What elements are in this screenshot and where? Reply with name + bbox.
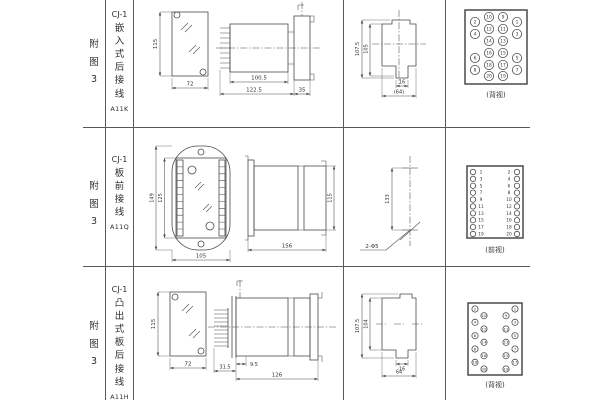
svg-text:122.5: 122.5 bbox=[246, 88, 262, 94]
type-label-a11q: CJ-1 板 前 接 线 A11Q bbox=[106, 155, 133, 231]
terminal-circle bbox=[514, 204, 519, 209]
terminal-number: 1 bbox=[516, 20, 519, 26]
a11q-side-view-drawing: 156 115 bbox=[238, 138, 346, 268]
dimension-arrowhead bbox=[170, 367, 174, 370]
terminal-number: 7 bbox=[516, 68, 519, 74]
dimension-arrowhead bbox=[333, 227, 336, 231]
svg-text:16: 16 bbox=[399, 80, 405, 86]
terminal-number: 13 bbox=[500, 39, 506, 45]
hatch-mark bbox=[189, 329, 200, 338]
terminal-number: 13 bbox=[478, 211, 484, 217]
a11h-panel-cutout-drawing: 107.5 104 16 64 bbox=[352, 278, 447, 396]
dimension-arrowhead bbox=[285, 81, 289, 84]
hole-callout: 2-Φ5 bbox=[360, 230, 410, 250]
dimension-arrowhead bbox=[205, 87, 209, 90]
terminal-circle bbox=[514, 197, 519, 202]
dim-total-length: 156 bbox=[248, 230, 326, 252]
svg-text:115: 115 bbox=[328, 193, 334, 203]
relay-outline bbox=[170, 292, 206, 356]
dimension-arrowhead bbox=[172, 87, 176, 90]
model-name: CJ-1 bbox=[106, 10, 133, 19]
terminal-circle bbox=[470, 176, 475, 181]
svg-text:72: 72 bbox=[185, 362, 192, 368]
dimension-arrowhead bbox=[361, 294, 364, 298]
dimension-arrowhead bbox=[155, 146, 158, 150]
terminal-number: 1 bbox=[480, 170, 483, 176]
terminal-circle bbox=[470, 197, 475, 202]
terminal-number: 20 bbox=[506, 232, 512, 238]
terminal-circle bbox=[514, 176, 519, 181]
dim-outer-height: 107.5 bbox=[355, 20, 394, 78]
dim-inner-height: 125 bbox=[158, 158, 176, 238]
terminal-circle bbox=[514, 190, 519, 195]
dim-height: 115 bbox=[153, 12, 172, 76]
terminal-number: 9 bbox=[505, 313, 508, 318]
terminal-number: 19 bbox=[504, 366, 509, 371]
dimension-arrowhead bbox=[236, 363, 240, 366]
dim-total-length: 126 bbox=[236, 360, 318, 381]
svg-text:(64): (64) bbox=[394, 90, 404, 96]
terminal-circle bbox=[470, 183, 475, 188]
mounting-plate bbox=[245, 156, 254, 240]
dimension-arrowhead bbox=[391, 168, 394, 172]
dim-width: 105 bbox=[172, 250, 230, 262]
mounting-hole bbox=[188, 166, 196, 174]
model-code: A11Q bbox=[106, 223, 133, 231]
svg-text:115: 115 bbox=[153, 38, 159, 49]
terminal-number: 11 bbox=[478, 204, 484, 210]
dim-board-offset: 9.5 bbox=[236, 356, 258, 368]
mounting-hole bbox=[198, 348, 204, 354]
terminal-number: 9 bbox=[480, 197, 483, 203]
svg-text:149: 149 bbox=[150, 193, 156, 203]
terminal-number: 18 bbox=[506, 225, 512, 231]
model-name: CJ-1 bbox=[106, 155, 133, 164]
svg-text:64: 64 bbox=[396, 370, 402, 376]
dimension-arrowhead bbox=[382, 375, 386, 378]
dimension-arrowhead bbox=[405, 363, 409, 366]
dimension-arrowhead bbox=[361, 75, 364, 79]
svg-text:105: 105 bbox=[364, 44, 370, 54]
terminal-number: 15 bbox=[478, 218, 484, 224]
terminal-number: 6 bbox=[474, 56, 477, 62]
dimension-arrowhead bbox=[369, 298, 372, 302]
relay-body bbox=[176, 158, 226, 238]
terminal-number: 8 bbox=[508, 190, 511, 196]
dimension-arrowhead bbox=[248, 249, 252, 252]
terminal-circle bbox=[514, 224, 519, 229]
dim-height: 115 bbox=[151, 292, 170, 356]
mounting-hole bbox=[206, 222, 214, 230]
dimension-arrowhead bbox=[157, 353, 160, 357]
terminal-number: 9 bbox=[502, 15, 505, 21]
fig-label-row1: 附 图 3 bbox=[83, 36, 105, 89]
dim-inner-height: 105 bbox=[364, 24, 395, 76]
svg-text:126: 126 bbox=[272, 373, 283, 379]
terminal-number: 16 bbox=[506, 218, 512, 224]
dimension-arrowhead bbox=[230, 81, 234, 84]
view-caption: (背视) bbox=[486, 90, 506, 99]
dimension-arrowhead bbox=[405, 85, 409, 88]
dimension-arrowhead bbox=[294, 93, 298, 96]
fig-label-row2: 附 图 3 bbox=[83, 178, 105, 231]
terminal-pins bbox=[220, 26, 230, 72]
dimension-arrowhead bbox=[157, 292, 160, 296]
terminal-number: 4 bbox=[508, 176, 511, 182]
rear-section bbox=[298, 161, 326, 235]
svg-text:107.5: 107.5 bbox=[355, 42, 361, 56]
svg-text:104: 104 bbox=[364, 319, 370, 329]
dimension-arrowhead bbox=[413, 95, 417, 98]
terminal-number: 1 bbox=[514, 306, 517, 311]
terminal-circle bbox=[470, 218, 475, 223]
view-caption: (前视) bbox=[485, 245, 505, 254]
terminal-number: 3 bbox=[514, 320, 517, 325]
terminal-circle bbox=[514, 218, 519, 223]
terminal-pins bbox=[214, 308, 228, 348]
terminal-number: 4 bbox=[474, 32, 477, 38]
terminal-circle bbox=[514, 169, 519, 174]
dimension-arrowhead bbox=[291, 93, 295, 96]
terminal-number: 7 bbox=[514, 346, 517, 351]
dim-outer-height: 107.5 bbox=[355, 294, 398, 358]
terminal-number: 19 bbox=[478, 232, 484, 238]
terminal-number: 11 bbox=[504, 326, 509, 331]
svg-text:105: 105 bbox=[196, 254, 207, 260]
screw bbox=[198, 241, 204, 247]
dimension-arrowhead bbox=[396, 363, 400, 366]
terminal-number: 17 bbox=[500, 63, 506, 69]
centerline bbox=[216, 2, 320, 48]
terminal-number: 18 bbox=[486, 63, 492, 69]
svg-text:156: 156 bbox=[282, 244, 293, 250]
terminal-number: 18 bbox=[473, 360, 478, 365]
terminal-number: 12 bbox=[486, 27, 492, 33]
svg-text:100.5: 100.5 bbox=[251, 76, 267, 82]
terminal-strip-right bbox=[219, 160, 225, 236]
terminal-number: 2 bbox=[474, 20, 477, 26]
svg-text:125: 125 bbox=[158, 193, 164, 203]
dimension-arrowhead bbox=[361, 20, 364, 24]
type-label-a11h: CJ-1 凸 出 式 板 后 接 线 A11H bbox=[106, 285, 133, 400]
terminal-number: 13 bbox=[504, 340, 509, 345]
svg-text:2-Φ5: 2-Φ5 bbox=[365, 244, 379, 250]
terminal-number: 10 bbox=[486, 15, 492, 21]
dimension-arrowhead bbox=[333, 166, 336, 170]
grid-hline-1 bbox=[83, 127, 530, 128]
dimension-arrowhead bbox=[159, 73, 162, 77]
dimension-arrowhead bbox=[163, 158, 166, 162]
dimension-arrowhead bbox=[413, 375, 417, 378]
terminal-circle bbox=[514, 183, 519, 188]
terminal-number: 12 bbox=[482, 326, 487, 331]
terminal-number: 6 bbox=[474, 333, 477, 338]
dim-body-length: 100.5 bbox=[230, 72, 288, 84]
dimension-arrowhead bbox=[396, 85, 400, 88]
model-code: A11H bbox=[106, 393, 133, 400]
mount-type: 嵌 入 式 后 接 线 bbox=[106, 22, 133, 101]
terminal-circle bbox=[470, 211, 475, 216]
terminal-number: 14 bbox=[486, 39, 492, 45]
dimension-arrowhead bbox=[227, 259, 231, 262]
terminal-number: 12 bbox=[506, 204, 512, 210]
terminal-number: 10 bbox=[506, 197, 512, 203]
svg-text:115: 115 bbox=[151, 318, 157, 329]
dimension-arrowhead bbox=[369, 24, 372, 28]
terminal-number: 19 bbox=[500, 74, 506, 80]
svg-text:72: 72 bbox=[187, 82, 194, 88]
terminal-number: 2 bbox=[474, 306, 477, 311]
a11k-side-view-drawing: 100.5 122.5 35 bbox=[214, 2, 324, 110]
svg-text:133: 133 bbox=[385, 194, 391, 204]
a11k-terminal-back-view: (背视) 2109141211314136161558181772019 bbox=[455, 6, 550, 106]
dimension-arrowhead bbox=[382, 95, 386, 98]
terminal-number: 3 bbox=[516, 32, 519, 38]
mounting-hole bbox=[200, 69, 206, 75]
terminal-number: 10 bbox=[482, 313, 487, 318]
dimension-arrowhead bbox=[369, 347, 372, 351]
mounting-plate-outline bbox=[172, 146, 230, 250]
terminal-strip-left bbox=[177, 160, 183, 236]
cutout-outline bbox=[382, 294, 416, 358]
hatch-mark bbox=[182, 304, 193, 313]
hole-slash bbox=[400, 222, 420, 240]
a11q-terminal-front-view: (前视) 1234567891011121314151617181920 bbox=[455, 138, 550, 268]
centerline bbox=[208, 280, 336, 327]
view-caption: (背视) bbox=[485, 380, 505, 389]
type-label-a11k: CJ-1 嵌 入 式 后 接 线 A11K bbox=[106, 10, 133, 113]
hatch-mark bbox=[203, 204, 212, 212]
dim-pin-length: 31.5 bbox=[214, 348, 236, 381]
dim-tab-width: 16 bbox=[396, 80, 408, 89]
drawing-sheet: 附 图 3 附 图 3 附 图 3 CJ-1 嵌 入 式 后 接 线 A11K … bbox=[0, 0, 600, 400]
hatch-mark bbox=[195, 182, 204, 190]
dimension-arrowhead bbox=[315, 378, 319, 381]
terminal-number: 15 bbox=[500, 51, 506, 57]
terminal-number: 14 bbox=[482, 340, 487, 345]
fig-label-row3: 附 图 3 bbox=[83, 318, 105, 371]
a11k-panel-cutout-drawing: 107.5 105 16 (64) bbox=[352, 4, 444, 116]
terminal-number: 8 bbox=[474, 68, 477, 74]
svg-text:35: 35 bbox=[299, 88, 306, 94]
terminal-number: 14 bbox=[506, 211, 512, 217]
terminal-circle bbox=[470, 231, 475, 236]
terminal-circle bbox=[470, 204, 475, 209]
relay-body bbox=[254, 166, 298, 230]
terminal-number: 7 bbox=[480, 190, 483, 196]
dimension-arrowhead bbox=[233, 370, 237, 373]
terminal-number: 5 bbox=[516, 56, 519, 62]
mount-type: 凸 出 式 板 后 接 线 bbox=[106, 297, 133, 389]
dim-height: 115 bbox=[326, 166, 336, 230]
terminal-number: 16 bbox=[482, 353, 487, 358]
terminal-number: 17 bbox=[478, 225, 484, 231]
dimension-arrowhead bbox=[163, 235, 166, 239]
terminal-number: 5 bbox=[480, 183, 483, 189]
mounting-hole bbox=[174, 12, 180, 18]
dimension-arrowhead bbox=[361, 355, 364, 359]
terminal-number: 20 bbox=[482, 366, 487, 371]
model-code: A11K bbox=[106, 105, 133, 113]
centerline bbox=[372, 10, 426, 84]
dimension-arrowhead bbox=[236, 378, 240, 381]
svg-text:107.5: 107.5 bbox=[355, 319, 361, 333]
a11q-front-view-drawing: 149 125 105 bbox=[148, 138, 248, 268]
terminal-circle bbox=[514, 231, 519, 236]
terminal-circle bbox=[470, 224, 475, 229]
terminal-number: 2 bbox=[508, 170, 511, 176]
dimension-arrowhead bbox=[323, 249, 327, 252]
dim-width: 72 bbox=[170, 358, 206, 370]
terminal-circle bbox=[470, 169, 475, 174]
terminal-number: 8 bbox=[474, 346, 477, 351]
dimension-arrowhead bbox=[220, 93, 224, 96]
terminal-number: 11 bbox=[500, 27, 506, 33]
dimension-arrowhead bbox=[214, 370, 218, 373]
mounting-hole bbox=[172, 294, 178, 300]
dim-width: 72 bbox=[172, 78, 208, 90]
terminal-number: 17 bbox=[513, 360, 518, 365]
dim-flange: 35 bbox=[294, 80, 310, 96]
relay-outline bbox=[172, 12, 208, 76]
terminal-number: 6 bbox=[508, 183, 511, 189]
svg-text:9.5: 9.5 bbox=[250, 362, 258, 368]
screw bbox=[198, 149, 204, 155]
mount-type: 板 前 接 线 bbox=[106, 167, 133, 219]
terminal-number: 5 bbox=[514, 333, 517, 338]
dimension-arrowhead bbox=[391, 227, 394, 231]
terminal-number: 3 bbox=[480, 176, 483, 182]
dimension-arrowhead bbox=[369, 73, 372, 77]
dimension-arrowhead bbox=[172, 259, 176, 262]
svg-text:31.5: 31.5 bbox=[219, 365, 230, 371]
model-name: CJ-1 bbox=[106, 285, 133, 294]
hatch-mark bbox=[181, 23, 192, 32]
a11h-side-view-drawing: 9.5 31.5 126 bbox=[206, 272, 342, 396]
terminal-number: 16 bbox=[486, 51, 492, 57]
grid-vline-2 bbox=[133, 0, 134, 400]
hatch-mark bbox=[189, 45, 200, 54]
dimension-arrowhead bbox=[155, 247, 158, 251]
terminal-circle bbox=[470, 190, 475, 195]
a11h-terminal-back-view: (背视) 2104126148161820193115137151719 bbox=[455, 278, 550, 396]
a11q-mounting-holes-drawing: 133 2-Φ5 bbox=[352, 138, 447, 268]
dimension-arrowhead bbox=[243, 363, 247, 366]
terminal-circle bbox=[514, 211, 519, 216]
terminal-number: 4 bbox=[474, 320, 477, 325]
dimension-arrowhead bbox=[307, 93, 311, 96]
dimension-arrowhead bbox=[159, 12, 162, 16]
dim-total-length: 122.5 bbox=[220, 70, 294, 96]
dim-hole-distance: 133 bbox=[385, 168, 408, 230]
terminal-number: 15 bbox=[504, 353, 509, 358]
a11k-front-view-drawing: 115 72 bbox=[148, 4, 216, 102]
terminal-number: 20 bbox=[486, 74, 492, 80]
